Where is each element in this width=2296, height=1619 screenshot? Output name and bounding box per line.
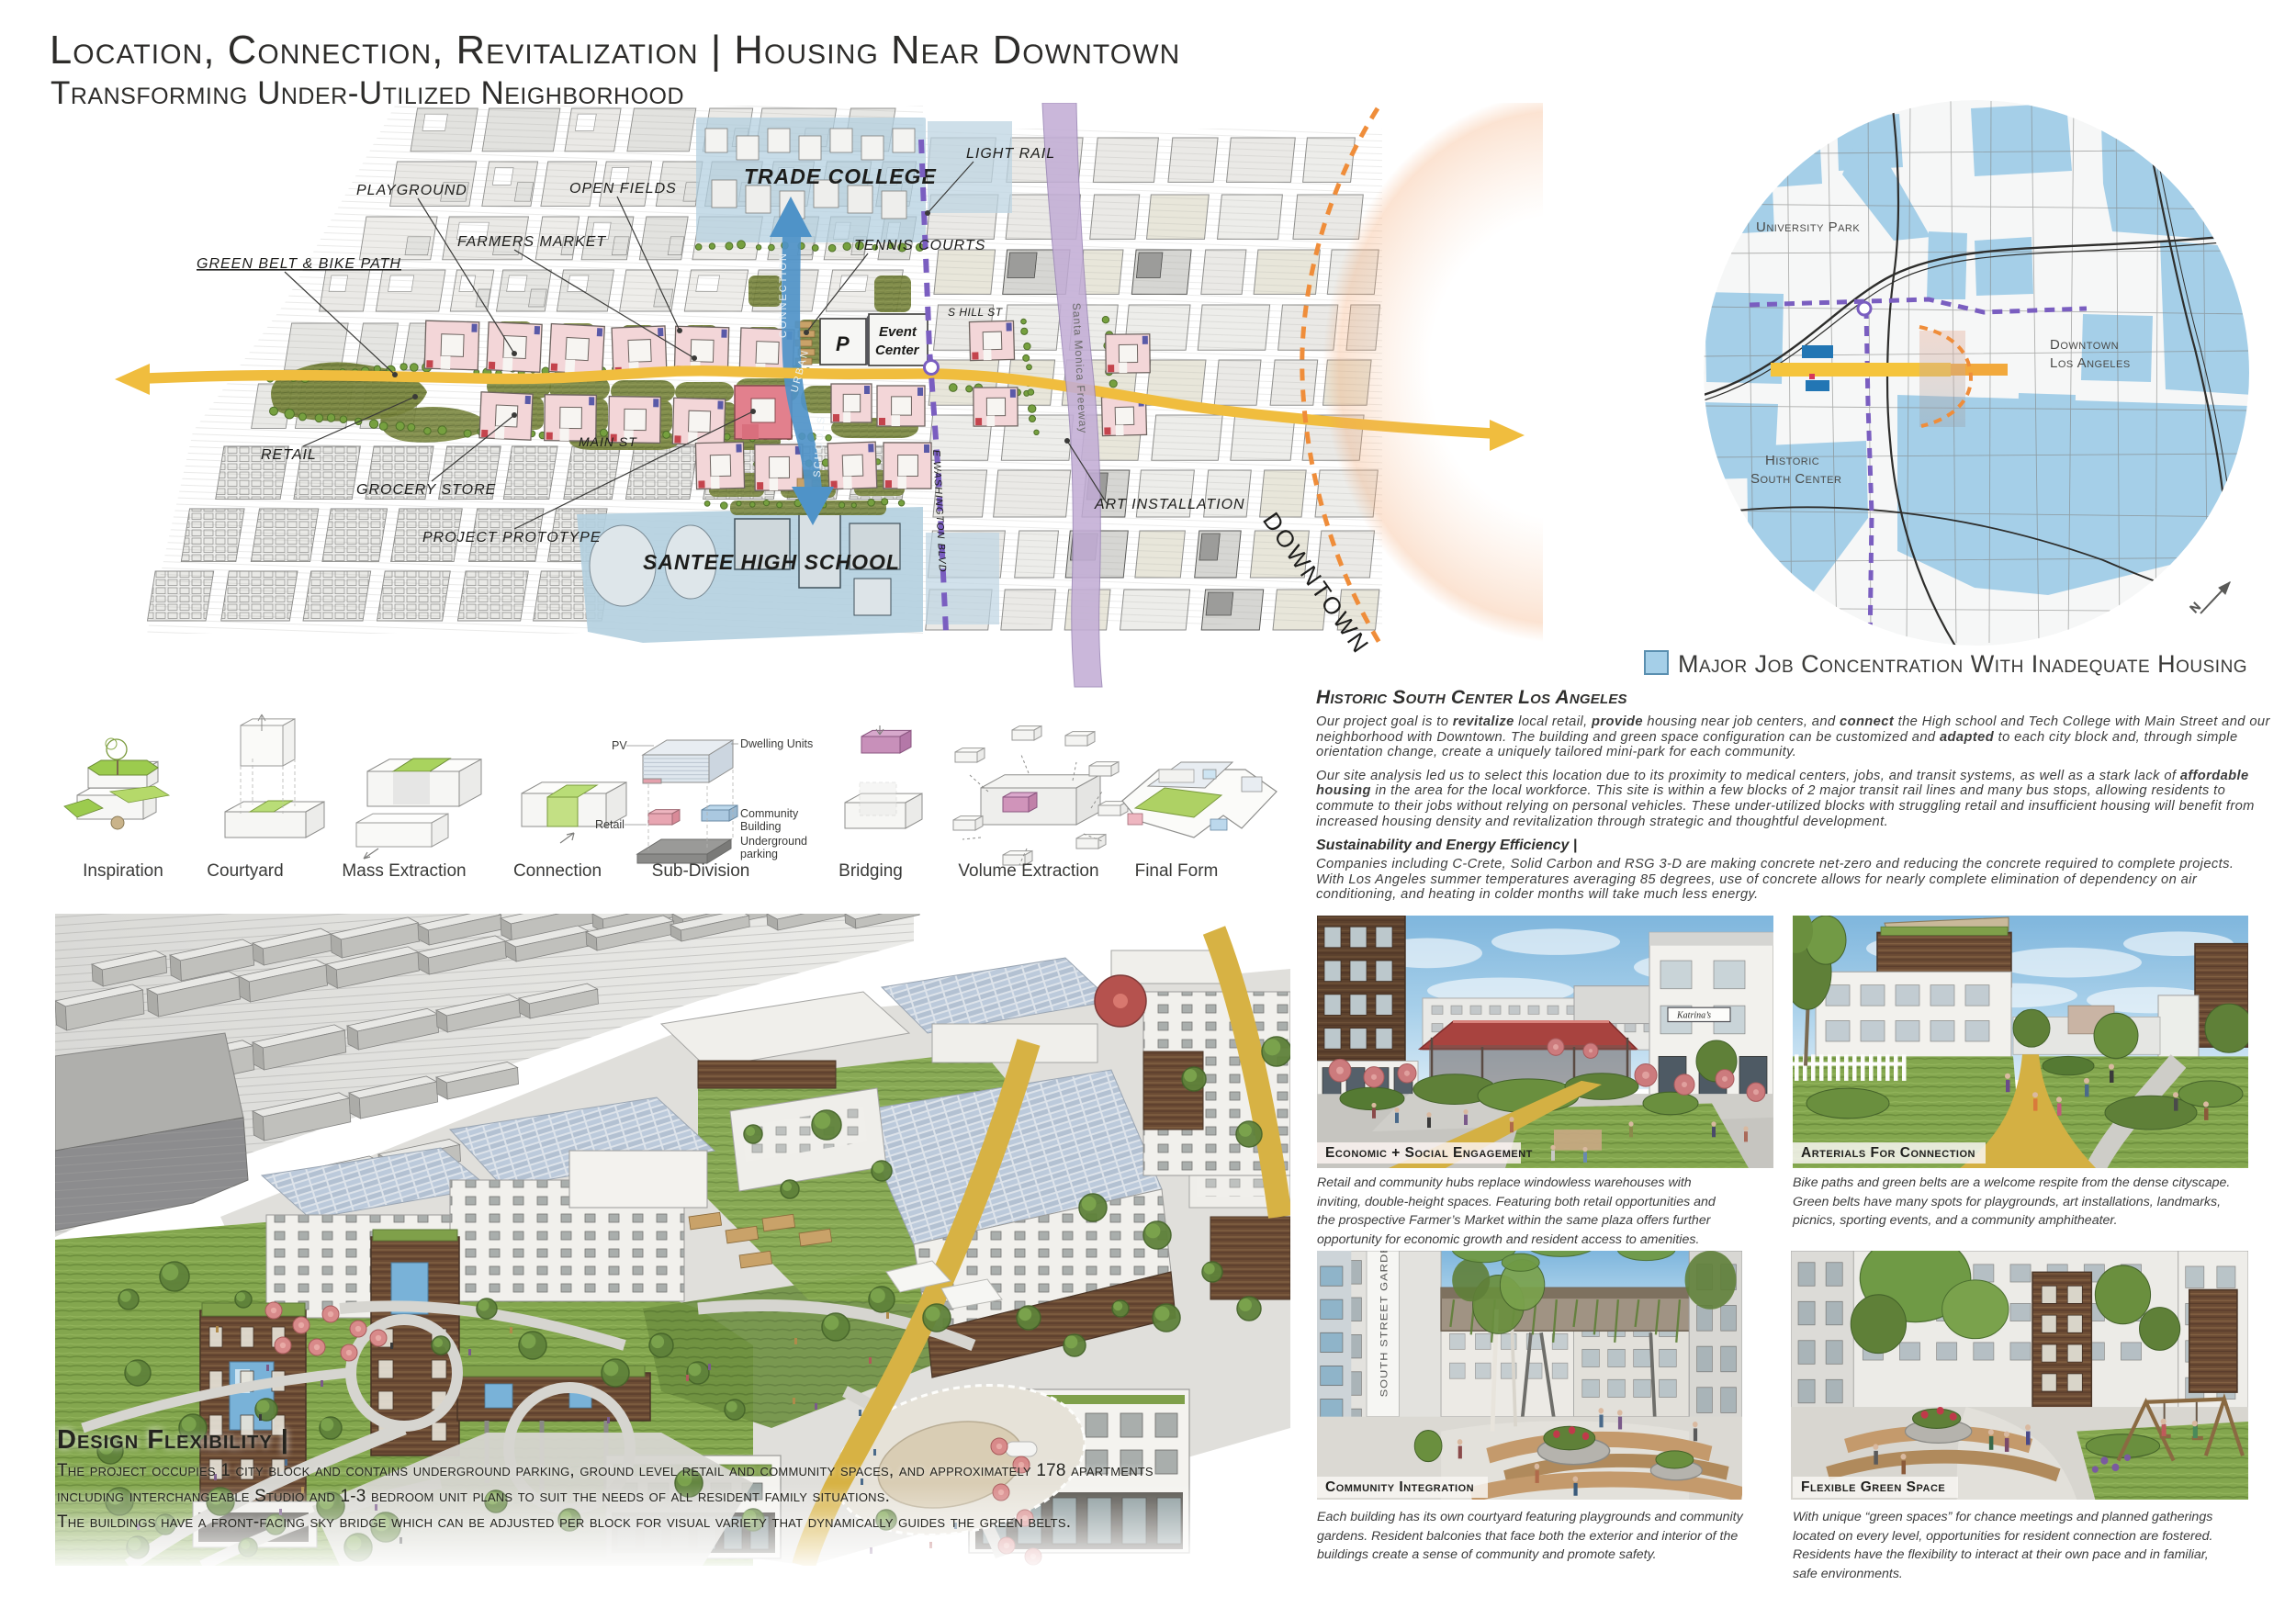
svg-text:OPEN FIELDS: OPEN FIELDS bbox=[569, 181, 677, 197]
svg-text:SOUTH STREET GARDENS: SOUTH STREET GARDENS bbox=[1378, 1251, 1390, 1397]
svg-text:Downtown: Downtown bbox=[2050, 337, 2119, 353]
svg-text:GREEN BELT & BIKE PATH: GREEN BELT & BIKE PATH bbox=[197, 256, 401, 272]
svg-text:Retail: Retail bbox=[595, 818, 625, 831]
svg-text:Katrina’s: Katrina’s bbox=[1676, 1010, 1711, 1020]
svg-text:Center: Center bbox=[875, 343, 920, 358]
svg-text:PV: PV bbox=[612, 739, 627, 752]
svg-text:TRADE COLLEGE: TRADE COLLEGE bbox=[744, 164, 937, 188]
svg-text:TENNIS COURTS: TENNIS COURTS bbox=[854, 238, 985, 253]
svg-text:Underground: Underground bbox=[740, 835, 807, 848]
svg-text:CONNECTION: CONNECTION bbox=[778, 252, 789, 338]
svg-text:Los Angeles: Los Angeles bbox=[2050, 355, 2131, 371]
svg-text:LIGHT RAIL: LIGHT RAIL bbox=[966, 146, 1055, 162]
svg-text:Historic: Historic bbox=[1765, 453, 1819, 468]
svg-text:Dwelling Units: Dwelling Units bbox=[740, 737, 813, 750]
svg-text:Community: Community bbox=[740, 807, 799, 820]
svg-text:PLAYGROUND: PLAYGROUND bbox=[356, 183, 467, 198]
svg-text:RETAIL: RETAIL bbox=[261, 447, 317, 463]
svg-text:SANTEE HIGH SCHOOL: SANTEE HIGH SCHOOL bbox=[643, 550, 900, 574]
svg-text:ART INSTALLATION: ART INSTALLATION bbox=[1094, 497, 1245, 512]
svg-text:S HILL ST: S HILL ST bbox=[948, 306, 1004, 319]
svg-text:University Park: University Park bbox=[1756, 219, 1860, 235]
svg-text:PROJECT PROTOTYPE: PROJECT PROTOTYPE bbox=[422, 530, 602, 545]
svg-text:FARMERS MARKET: FARMERS MARKET bbox=[457, 234, 606, 250]
svg-text:P: P bbox=[836, 332, 850, 355]
svg-text:Event: Event bbox=[879, 324, 917, 340]
svg-text:Building: Building bbox=[740, 820, 782, 833]
svg-text:GROCERY STORE: GROCERY STORE bbox=[356, 482, 496, 498]
svg-text:MAIN ST: MAIN ST bbox=[579, 434, 637, 449]
svg-text:South Center: South Center bbox=[1750, 471, 1841, 487]
svg-text:parking: parking bbox=[740, 848, 778, 860]
